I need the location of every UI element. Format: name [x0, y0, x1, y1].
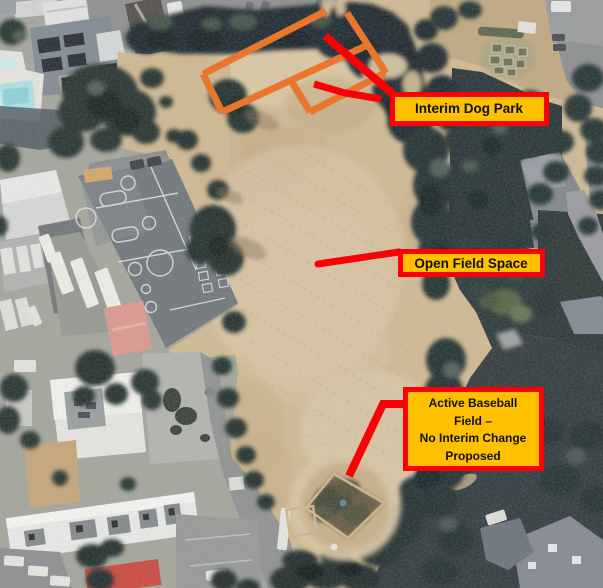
svg-text:Field –: Field – — [454, 414, 492, 428]
svg-text:Proposed: Proposed — [445, 449, 500, 463]
svg-text:Open Field Space: Open Field Space — [414, 256, 528, 271]
svg-text:Active Baseball: Active Baseball — [429, 396, 518, 410]
svg-text:No Interim Change: No Interim Change — [420, 431, 527, 445]
svg-text:Interim Dog Park: Interim Dog Park — [415, 101, 524, 116]
